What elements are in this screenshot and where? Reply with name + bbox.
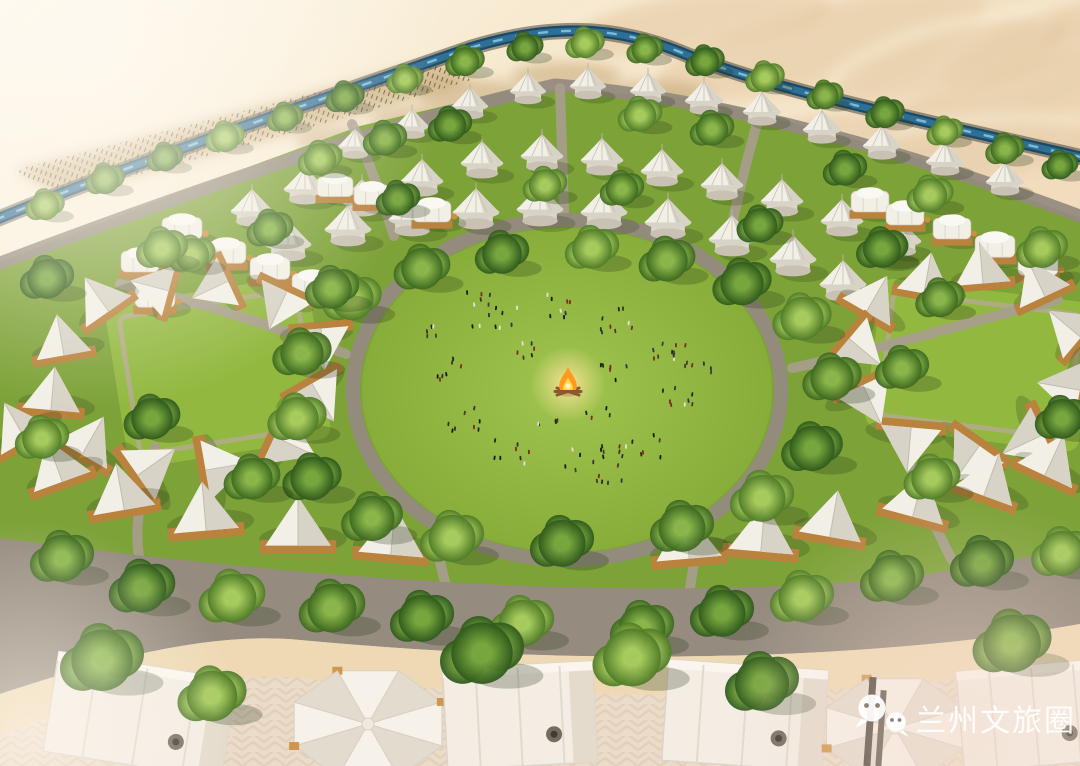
- light-haze: [0, 0, 1080, 766]
- wechat-bubble-small: [886, 712, 906, 732]
- wechat-eye: [890, 718, 894, 722]
- aerial-render-desert-glamping-resort: 兰州文旅圈: [0, 0, 1080, 766]
- wechat-eye: [898, 718, 902, 722]
- wechat-eye: [864, 703, 869, 708]
- atmosphere-haze-layer: [0, 0, 1080, 766]
- scene-canvas: 兰州文旅圈: [0, 0, 1080, 766]
- watermark-text: 兰州文旅圈: [916, 704, 1076, 739]
- wechat-bubble-large: [859, 695, 886, 722]
- wechat-eye: [875, 703, 880, 708]
